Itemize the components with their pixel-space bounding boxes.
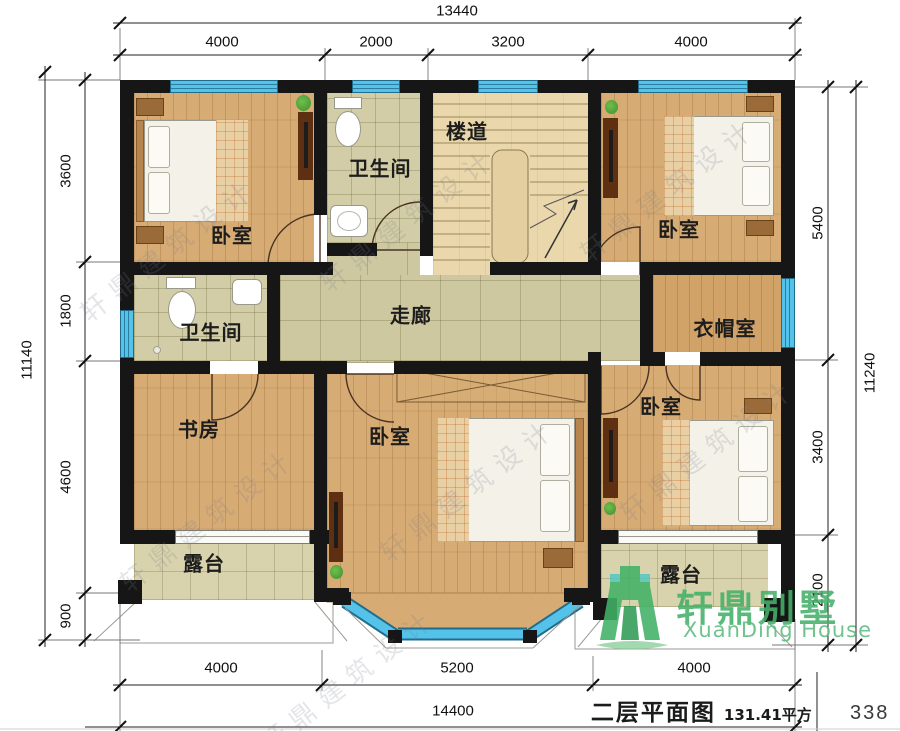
plan-area: 131.41平方 — [724, 704, 812, 725]
wall-cloak-bottom-a — [640, 352, 665, 366]
bed-tr-blanket — [664, 116, 694, 216]
wall-bed-tl-bottom — [120, 262, 314, 275]
dim-left-seg-1: 3600 — [58, 154, 75, 187]
label-bedroom-center: 卧室 — [369, 421, 411, 450]
label-bathroom-left: 卫生间 — [180, 317, 243, 346]
label-bedroom-top-right: 卧室 — [658, 214, 700, 243]
label-cloakroom: 衣帽室 — [694, 313, 757, 342]
wall-cloak-bottom-b — [700, 352, 781, 366]
bed-center-nightstand — [543, 548, 573, 568]
bed-tl-pillow-1 — [148, 126, 170, 168]
sink-left — [232, 279, 262, 305]
wall-stair-bed-tr — [588, 93, 601, 275]
bed-center-headboard — [575, 418, 584, 542]
dim-left-total: 11140 — [19, 340, 36, 380]
sink-top-basin — [337, 211, 361, 231]
bed-tl-nightstand-2 — [136, 226, 164, 244]
plant-bedroom-center — [330, 565, 343, 579]
dim-right-total: 11240 — [862, 353, 879, 394]
toilet-top-bowl — [335, 111, 361, 147]
watermark-7: 轩鼎建筑设计 — [252, 597, 445, 731]
bay-window — [327, 593, 588, 640]
dim-top-seg-4: 4000 — [674, 34, 707, 51]
bed-center-blanket — [437, 418, 469, 542]
bed-tl-headboard — [136, 120, 144, 222]
wall-corridor-bottom-a — [120, 361, 210, 374]
bed-br-tv — [609, 430, 613, 482]
floor-plan-canvas: 卧室 卫生间 楼道 卧室 卫生间 走廊 衣帽室 书房 卧室 卧室 露台 露台 1… — [0, 0, 900, 731]
wall-bath-top-bottom — [327, 243, 377, 256]
post-bay-d — [572, 592, 590, 605]
window-stair-hall — [478, 80, 538, 93]
label-bedroom-bottom-right: 卧室 — [640, 391, 682, 420]
bed-br-pillow-1 — [738, 426, 768, 472]
wall-bath-stair — [420, 93, 433, 256]
plant-bedroom-br — [604, 502, 616, 515]
wall-corridor-bottom-b — [258, 361, 347, 374]
floor-corridor — [280, 275, 640, 361]
plant-bedroom-tl — [296, 95, 311, 111]
bed-br-nightstand — [744, 398, 772, 414]
wall-corridor-bottom-c — [394, 361, 588, 374]
plan-caption: 二层平面图 131.41平方 — [591, 693, 812, 727]
bed-tr-nightstand-1 — [746, 96, 774, 112]
floor-study — [134, 374, 314, 530]
window-bedroom-tl — [170, 80, 278, 93]
terrace-left-apron — [94, 602, 347, 643]
post-bay-b — [388, 630, 402, 643]
post-terrace-left — [118, 580, 142, 604]
bed-tl-tv — [304, 122, 308, 168]
label-stair-hall: 楼道 — [446, 116, 488, 145]
floor-drain — [153, 346, 161, 354]
dim-right-seg-2: 3400 — [810, 430, 827, 463]
dim-left-seg-4: 900 — [58, 603, 75, 628]
bed-tr-pillow-2 — [742, 166, 770, 206]
wall-corridor-corner — [588, 352, 601, 366]
dim-left-seg-2: 1800 — [58, 294, 75, 327]
toilet-top-tank — [334, 97, 362, 109]
dim-top-total: 13440 — [436, 3, 478, 20]
bed-center-tv — [334, 502, 338, 548]
plant-bedroom-tr — [605, 100, 618, 114]
bed-tr-pillow-1 — [742, 122, 770, 162]
dim-bottom-seg-2: 5200 — [440, 660, 473, 677]
label-bathroom-top: 卫生间 — [349, 153, 412, 182]
bed-tl-pillow-2 — [148, 172, 170, 214]
bed-tr-tv — [609, 130, 613, 182]
bed-tr-nightstand-2 — [746, 220, 774, 236]
wall-bath-left-right — [267, 275, 280, 361]
label-study: 书房 — [178, 414, 220, 443]
label-terrace-left: 露台 — [183, 548, 225, 577]
window-study-terrace — [175, 530, 310, 544]
window-bathroom-left — [120, 310, 134, 358]
window-cloakroom — [781, 278, 795, 348]
xuanding-logo-icon — [594, 552, 670, 652]
post-bay-a — [333, 592, 351, 605]
floor-terrace-left — [134, 544, 317, 600]
dim-top-seg-1: 4000 — [205, 34, 238, 51]
plan-title: 二层平面图 — [591, 693, 716, 727]
page-number: 338 — [850, 702, 889, 725]
toilet-left-tank — [166, 277, 196, 289]
wall-bed-center-left — [314, 374, 327, 602]
window-bed-br-terrace — [618, 530, 758, 544]
bed-center-pillow-1 — [540, 424, 570, 476]
bed-br-pillow-2 — [738, 476, 768, 522]
dim-top-seg-3: 3200 — [491, 34, 524, 51]
bed-tl-nightstand-1 — [136, 98, 164, 116]
window-bedroom-tr — [638, 80, 748, 93]
dim-bottom-total: 14400 — [432, 703, 474, 720]
dim-right-seg-1: 5400 — [810, 206, 827, 239]
logo-subtitle: XuanDing House — [683, 618, 872, 642]
wall-cloak-left — [640, 275, 653, 352]
bed-tl-blanket — [216, 120, 248, 222]
dim-left-seg-3: 4600 — [58, 460, 75, 493]
dim-bottom-seg-3: 4000 — [677, 660, 710, 677]
bed-br-blanket — [662, 420, 690, 526]
label-corridor: 走廊 — [390, 300, 432, 329]
wall-bed-tr-bottom — [640, 262, 781, 275]
wall-stair-bottom — [490, 262, 588, 275]
post-bay-c — [523, 630, 537, 643]
dim-top-seg-2: 2000 — [359, 34, 392, 51]
dim-bottom-seg-1: 4000 — [204, 660, 237, 677]
bed-center-pillow-2 — [540, 480, 570, 532]
window-bathroom-top — [352, 80, 400, 93]
wall-bed-tl-bath — [314, 93, 327, 215]
label-bedroom-top-left: 卧室 — [211, 220, 253, 249]
wall-bed-tl-block — [314, 262, 333, 275]
